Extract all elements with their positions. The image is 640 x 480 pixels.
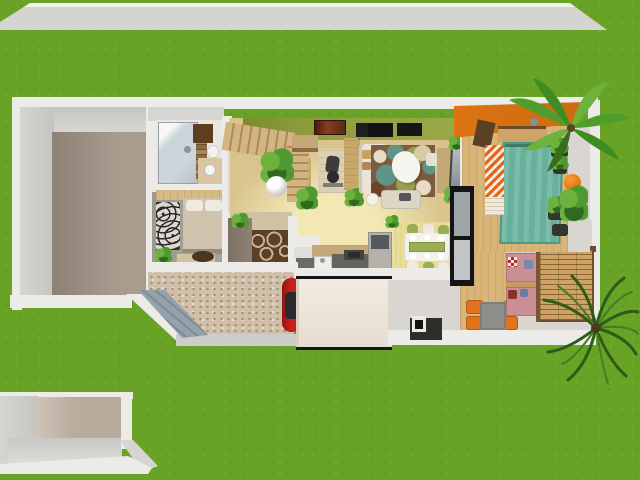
bath-shelf <box>193 124 213 143</box>
bookshelf[interactable] <box>344 138 358 190</box>
basement-floor <box>36 397 122 438</box>
exercise-bike-wheel <box>327 171 339 183</box>
bed-pillow-left <box>186 200 203 211</box>
street <box>0 0 640 31</box>
table-runner <box>409 242 445 252</box>
sideboard[interactable] <box>292 135 318 152</box>
dining-chair-1[interactable] <box>407 224 418 233</box>
patio-chair-4[interactable] <box>504 316 518 330</box>
side-table[interactable] <box>366 193 379 206</box>
sliding-door-pane-1 <box>454 192 470 236</box>
east-bush[interactable] <box>560 184 588 226</box>
floor-plan-3d-viewport[interactable] <box>0 0 640 480</box>
toilet[interactable] <box>207 145 219 158</box>
cooktop[interactable] <box>344 250 364 260</box>
hallway-circle-rug[interactable] <box>247 230 291 264</box>
west-room-south-wall <box>10 295 132 308</box>
patterned-wardrobe[interactable] <box>156 202 180 250</box>
stairs-floor-plant[interactable] <box>296 186 318 212</box>
sphere-lamp <box>266 176 287 197</box>
bedroom-round-rug <box>192 251 214 262</box>
hall-cabinet-plant[interactable] <box>231 213 249 229</box>
checker-pillow <box>508 257 517 267</box>
shower[interactable] <box>158 122 198 184</box>
exercise-bike-base <box>323 183 343 187</box>
dining-chair-3[interactable] <box>438 225 449 234</box>
chevron-lounger-foot <box>485 197 504 215</box>
blue-pillow-2 <box>520 289 528 297</box>
west-room-left-face <box>20 107 54 297</box>
plate-1 <box>410 235 416 241</box>
plate-2 <box>424 235 430 241</box>
fireplace-opening <box>415 320 423 329</box>
plate-4 <box>410 253 416 259</box>
dining-chair-2[interactable] <box>423 224 434 233</box>
plate-3 <box>438 235 444 241</box>
bed-pillow-right <box>205 200 222 211</box>
fridge-top-panel <box>371 235 389 249</box>
palm-tree-north-icon[interactable] <box>505 76 635 176</box>
patio-table[interactable] <box>480 302 506 330</box>
blue-pillow-1 <box>524 260 533 269</box>
sofa-pillow-2 <box>362 162 371 170</box>
plate-5 <box>424 253 430 259</box>
chaise-cushion <box>399 193 411 201</box>
sliding-door-pane-2 <box>454 240 470 280</box>
plate-6 <box>438 253 444 259</box>
red-pillow <box>508 290 517 299</box>
bath-top-face <box>148 107 224 121</box>
carport-awning[interactable] <box>296 276 392 350</box>
kitchen-faucet <box>320 258 325 263</box>
tv-wall-panel-right[interactable] <box>397 123 422 136</box>
shower-head <box>184 146 191 153</box>
palm-tree-south-icon[interactable] <box>538 260 640 392</box>
chevron-lounger[interactable] <box>485 145 504 197</box>
dining-plant[interactable] <box>385 215 399 229</box>
vanity-sink <box>204 164 216 176</box>
tv-wall-panel-left[interactable] <box>356 123 393 137</box>
wall-painting[interactable] <box>315 121 345 134</box>
